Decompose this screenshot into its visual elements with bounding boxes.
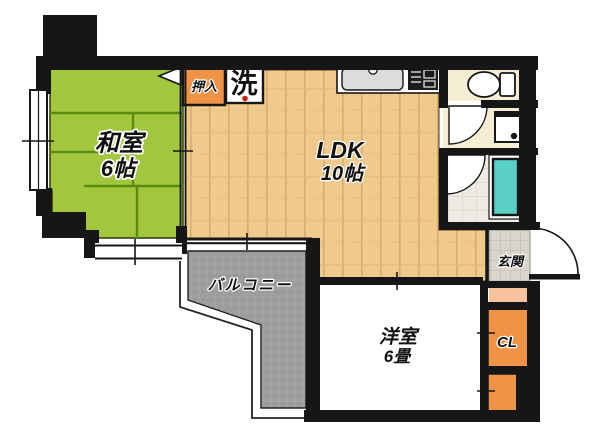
- wall-balcony-western: [306, 238, 320, 418]
- wall-pillar-topleft: [43, 15, 97, 63]
- closet-cl-label: CL: [497, 334, 517, 351]
- wall-bottom: [304, 410, 540, 422]
- entrance-label: 玄関: [497, 254, 525, 269]
- floorplan-canvas: 和室 6帖 LDK 10帖 洋室 6畳 バルコニー 玄関 CL 押入 洗: [0, 0, 603, 437]
- wall-right-upper: [519, 56, 536, 230]
- western-size-label: 6畳: [384, 347, 412, 366]
- toilet-icon: [468, 72, 515, 97]
- bathtub-icon: [489, 155, 522, 219]
- wall-bottomright-fill: [516, 374, 540, 414]
- wall-left-upper: [36, 56, 51, 94]
- wall-ldk-fixture-upper: [439, 56, 448, 108]
- wall-cl-divider: [480, 366, 540, 374]
- closet-lower-floor: [488, 374, 517, 411]
- laundry-label: 洗: [231, 69, 258, 99]
- washitsu-size-label: 6帖: [101, 156, 139, 181]
- western-label: 洋室: [379, 326, 420, 348]
- stove-icon: [408, 67, 438, 90]
- wall-ldk-fixture-lower: [439, 148, 448, 230]
- ldk-label: LDK: [316, 137, 365, 163]
- washitsu-label: 和室: [95, 130, 147, 157]
- oshiire-label: 押入: [191, 79, 217, 94]
- wall-entrance-step: [481, 281, 540, 288]
- ldk-size-label: 10帖: [321, 162, 366, 185]
- wall-step-cl: [481, 302, 540, 310]
- washbasin-icon: [495, 112, 522, 142]
- balcony-label: バルコニー: [208, 277, 293, 294]
- wall-left-step1: [36, 188, 52, 216]
- entrance-door-leaf: [529, 274, 580, 280]
- entrance-step: [489, 287, 530, 303]
- wall-top: [36, 56, 538, 70]
- floorplan-drawing: 和室 6帖 LDK 10帖 洋室 6畳 バルコニー 玄関 CL 押入 洗: [0, 0, 603, 437]
- wall-left-step2: [42, 212, 86, 238]
